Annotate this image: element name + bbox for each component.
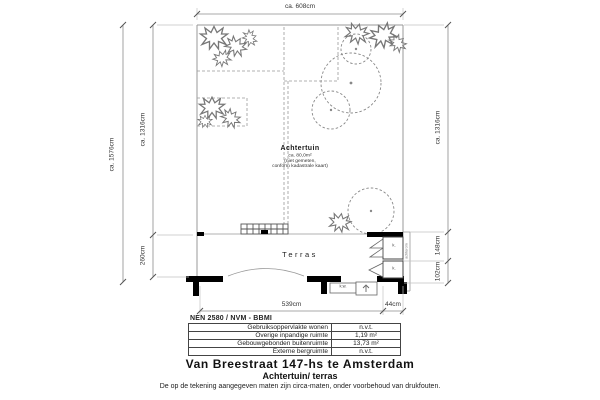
row-value: n.v.t. <box>332 348 401 356</box>
closet-door-swings <box>369 239 383 277</box>
garden-label-block: Achtertuin ca. 80,0m² (niet gemeten, con… <box>200 145 400 173</box>
nen-table-section: NEN 2580 / NVM - BBMI Gebruiksoppervlakt… <box>188 315 401 356</box>
terrace-label: Terras <box>250 250 350 259</box>
side-strip-label: achterom <box>405 236 409 267</box>
tree-trunk-markers <box>330 48 372 212</box>
row-label: Gebruiksoppervlakte wonen <box>189 324 332 332</box>
tree-canopies <box>312 34 394 234</box>
dim-label-left-inner-bottom: 260cm <box>140 226 147 286</box>
row-value: 1,19 m² <box>332 332 401 340</box>
table-row: Gebruiksoppervlakte wonen n.v.t. <box>189 324 401 332</box>
row-label: Gebouwgebonden buitenruimte <box>189 340 332 348</box>
dim-label-bottom-right: 44cm <box>373 301 413 308</box>
table-row: Overige inpandige ruimte 1,19 m² <box>189 332 401 340</box>
drawing-subtitle: Achtertuin/ terras <box>0 371 600 381</box>
planting-bed-edges <box>197 27 338 234</box>
dim-label-top: ca. 608cm <box>197 3 403 10</box>
door-swing-arc <box>228 269 304 277</box>
table-row: Externe bergruimte n.v.t. <box>189 348 401 356</box>
garden-title: Achtertuin <box>200 145 400 153</box>
side-strip <box>197 232 410 291</box>
row-value: 13,73 m² <box>332 340 401 348</box>
dim-label-left-inner-top: ca. 1316cm <box>140 100 147 160</box>
closet-top-label: k. <box>390 244 398 248</box>
nen-table-header: NEN 2580 / NVM - BBMI <box>190 315 401 322</box>
kitchen-window-label: k.w. <box>334 285 352 289</box>
dim-label-left-outer: ca. 1576cm <box>109 125 116 185</box>
shrub-icons <box>198 20 409 234</box>
dim-label-right-bottom: 102cm <box>435 242 442 302</box>
dim-label-right-top: ca. 1316cm <box>435 98 442 158</box>
row-value: n.v.t. <box>332 324 401 332</box>
row-label: Overige inpandige ruimte <box>189 332 332 340</box>
closet-bottom-label: k. <box>390 267 398 271</box>
dim-label-bottom-main: 539cm <box>200 301 383 308</box>
floorplan-sheet: ca. 608cm ca. 1576cm ca. 1316cm 260cm ca… <box>0 0 600 400</box>
railing-post <box>261 230 268 234</box>
nen-table: Gebruiksoppervlakte wonen n.v.t. Overige… <box>188 323 401 356</box>
garden-note-2: conform kadastrale kaart) <box>218 164 382 169</box>
row-label: Externe bergruimte <box>189 348 332 356</box>
drawing-disclaimer: De op de tekening aangegeven maten zijn … <box>0 383 600 390</box>
table-row: Gebouwgebonden buitenruimte 13,73 m² <box>189 340 401 348</box>
drawing-title: Van Breestraat 147-hs te Amsterdam <box>0 357 600 371</box>
